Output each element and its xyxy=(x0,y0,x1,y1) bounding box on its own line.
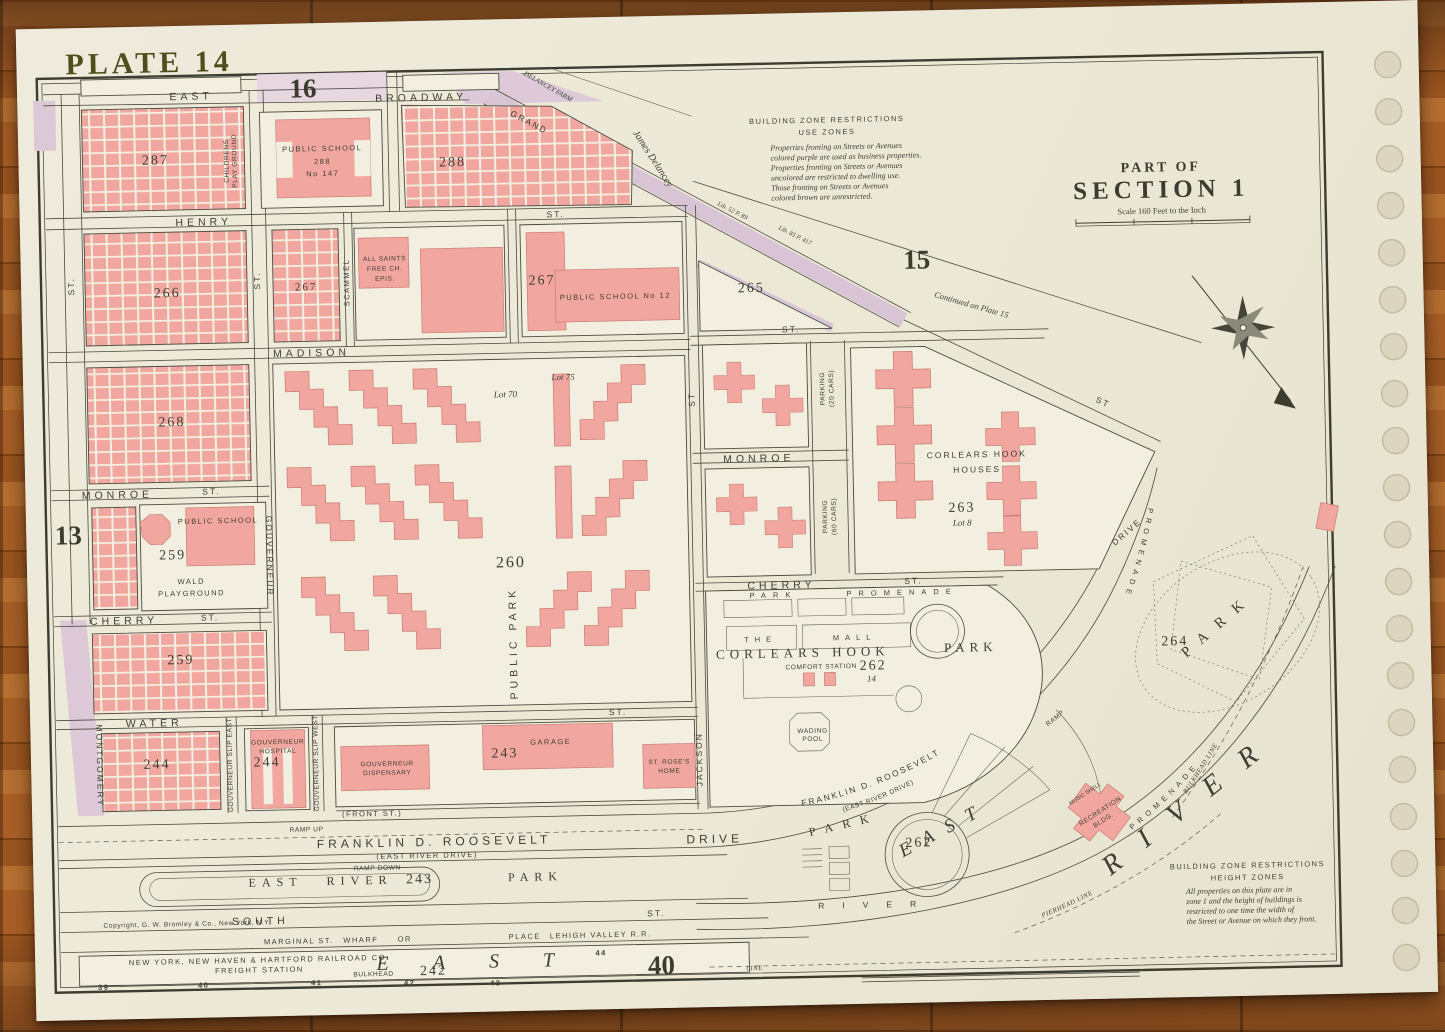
continued-note: Continued on Plate 15 xyxy=(933,289,1010,320)
corlears-hook-houses-line2: HOUSES xyxy=(953,464,1001,475)
ps259-label: PUBLIC SCHOOL xyxy=(178,515,259,526)
use-zones-subheading: USE ZONES xyxy=(798,127,855,137)
erp-river: RIVER xyxy=(326,873,392,888)
street-fdr-west-drive: DRIVE xyxy=(686,831,743,846)
title-scale: Scale 160 Feet to the Inch xyxy=(1117,204,1206,216)
block-262-lot: 14 xyxy=(867,674,877,684)
block-259-wald: 259 xyxy=(159,548,186,564)
block-287: 287 xyxy=(142,153,169,169)
height-zones-heading: BUILDING ZONE RESTRICTIONS xyxy=(1170,859,1325,871)
parking60-line2: (60 CARS) xyxy=(831,498,839,535)
parking20-line1: PARKING xyxy=(819,372,827,406)
block-262-park: 262 xyxy=(860,658,887,674)
plate-title: PLATE 14 xyxy=(65,45,233,81)
river-letters-big: RIVER xyxy=(1095,723,1286,883)
hospital-line2: HOSPITAL xyxy=(259,748,296,756)
block-259: 259 xyxy=(167,653,194,669)
parking60-line1: PARKING xyxy=(822,500,830,534)
street-water: WATER xyxy=(126,717,183,730)
street-front: (FRONT ST.) xyxy=(342,808,402,818)
neighbor-plate-15: 15 xyxy=(903,244,931,275)
deed-ref-b: Lib. 85 P. 417 xyxy=(776,224,813,247)
block-243-park: 243 xyxy=(406,872,433,888)
st-roses-line1: ST. ROSE'S xyxy=(648,758,690,766)
river-letters-small: RIVER xyxy=(818,898,934,910)
street-fdr-west-sub: (EAST RIVER DRIVE) xyxy=(376,850,478,861)
block-266: 266 xyxy=(154,286,181,302)
block-243: 243 xyxy=(491,746,518,762)
pier-40: 40 xyxy=(198,981,210,990)
street-left-st: ST. xyxy=(66,277,76,295)
the-mall-the: THE xyxy=(744,635,777,645)
atlas-sheet: PLATE 14 xyxy=(16,0,1438,1021)
dispensary-line2: DISPENSARY xyxy=(363,769,412,777)
dispensary-line1: GOUVERNEUR xyxy=(360,760,413,768)
street-monroe-e: MONROE xyxy=(723,452,794,465)
block-260: 260 xyxy=(496,554,526,572)
street-marginal: MARGINAL ST. xyxy=(264,936,334,946)
compass-rose xyxy=(1192,274,1296,411)
street-cherry-e-st: ST. xyxy=(904,576,922,586)
street-madison-st: ST. xyxy=(782,324,800,334)
pier-43: 43 xyxy=(490,978,502,987)
street-gouverneur-slip-east: GOUVERNEUR SLIP EAST xyxy=(226,718,235,812)
lot-75: Lot 75 xyxy=(550,372,575,383)
street-monroe-w-st: ST. xyxy=(202,486,220,496)
street-henry-st: ST. xyxy=(546,209,564,219)
title-block: PART OF SECTION 1 Scale 160 Feet to the … xyxy=(1073,159,1251,227)
neighbor-plate-13: 13 xyxy=(54,520,82,551)
pierhead-line-label: PIERHEAD LINE xyxy=(1039,890,1094,920)
block-267-mid: 267 xyxy=(295,281,318,293)
legend-height-zones: BUILDING ZONE RESTRICTIONS HEIGHT ZONES … xyxy=(1170,859,1327,926)
block-244-west: 244 xyxy=(253,755,280,771)
street-broadway: BROADWAY xyxy=(375,91,467,105)
block-244-hosp: 244 xyxy=(143,757,170,773)
erp-east: EAST xyxy=(248,875,302,890)
ps288-line3: No 147 xyxy=(306,169,339,179)
street-place: PLACE xyxy=(509,932,541,942)
east-letters-bottom: EAST xyxy=(375,948,598,975)
street-madison-st-diag: ST xyxy=(1094,394,1112,409)
street-gouverneur: GOUVERNEUR xyxy=(264,516,276,597)
pierhead-line-text: PIERHEAD LINE xyxy=(1039,890,1094,920)
corlears-hook-park-park: PARK xyxy=(944,639,998,655)
street-south-st: ST. xyxy=(647,908,665,918)
pier-44: 44 xyxy=(595,948,607,957)
street-mid-st: ST. xyxy=(252,271,262,289)
park-letters-fan: PARK xyxy=(808,809,880,839)
street-gouverneur-slip-west: GOUVERNEUR SLIP WEST xyxy=(312,715,321,811)
height-zones-subheading: HEIGHT ZONES xyxy=(1211,872,1285,883)
title-section: SECTION 1 xyxy=(1073,175,1250,206)
bulkhead-label: BULKHEAD xyxy=(353,971,393,979)
pier-42: 42 xyxy=(404,978,416,987)
street-or: OR xyxy=(398,934,412,943)
street-cherry-w-st: ST. xyxy=(201,612,219,622)
ps288-line2: 288 xyxy=(314,157,331,166)
map-plate: PLATE 14 xyxy=(16,0,1438,1021)
title-part-of: PART OF xyxy=(1121,160,1202,177)
street-monroe-w: MONROE xyxy=(82,489,153,502)
street-montgomery: MONTGOMERY xyxy=(94,724,106,807)
block-268: 268 xyxy=(158,415,185,431)
scale-bar xyxy=(1076,216,1250,227)
pier-41: 41 xyxy=(311,978,323,987)
street-water-st: ST. xyxy=(609,707,627,717)
street-wharf: WHARF xyxy=(343,935,378,945)
street-ramp-up: RAMP UP xyxy=(289,826,323,834)
pierhead-line-word: LINE xyxy=(745,965,763,972)
comfort-station-label: COMFORT STATION xyxy=(785,663,857,671)
street-jackson: JACKSON xyxy=(694,732,705,786)
neighbor-plate-40: 40 xyxy=(648,950,676,981)
copyright: Copyright, G. W. Bromley & Co., New York… xyxy=(103,919,271,930)
ps288-line1: PUBLIC SCHOOL xyxy=(282,143,363,154)
the-mall-mall: MALL xyxy=(833,633,877,643)
erp-park: PARK xyxy=(508,869,563,884)
neighbor-plate-16: 16 xyxy=(289,73,317,104)
legend-use-zones: BUILDING ZONE RESTRICTIONS USE ZONES Pro… xyxy=(749,113,922,203)
wald-line2: PLAYGROUND xyxy=(158,588,225,598)
parking20-line2: (20 CARS) xyxy=(828,370,836,407)
block-267: 267 xyxy=(528,273,555,289)
block-263-lot8: Lot 8 xyxy=(952,517,972,527)
childrens-label: CHILDRENS xyxy=(223,139,231,183)
wading-pool-line1: WADING xyxy=(797,728,828,736)
block-265: 265 xyxy=(738,281,765,297)
street-scammel: SCAMMEL xyxy=(342,259,352,307)
all-saints-line1: ALL SAINTS xyxy=(363,255,406,263)
block-288: 288 xyxy=(439,155,466,171)
st-roses-line2: HOME xyxy=(658,768,680,775)
height-zones-line4: the Street or Avenue on which they front… xyxy=(1187,914,1317,926)
block-263: 263 xyxy=(948,500,975,516)
garage-label: GARAGE xyxy=(530,737,571,747)
wald-line1: WALD xyxy=(177,577,205,587)
street-ramp-down: RAMP DOWN xyxy=(354,865,401,873)
street-east: EAST xyxy=(169,90,213,103)
lot-70: Lot 70 xyxy=(493,389,518,400)
park-letters-264: PARK xyxy=(1178,589,1257,661)
east-letters-inner: EAST xyxy=(895,797,993,863)
use-zones-line6: colored brown are unrestricted. xyxy=(771,191,872,202)
street-cherry-w: CHERRY xyxy=(90,615,158,628)
freight-line2: FREIGHT STATION xyxy=(215,965,304,976)
street-fdr-west: FRANKLIN D. ROOSEVELT xyxy=(317,832,552,851)
pier-39: 39 xyxy=(98,983,110,992)
public-park-label: PUBLIC PARK xyxy=(506,587,520,700)
street-henry: HENRY xyxy=(175,216,232,229)
street-lehigh-valley: LEHIGH VALLEY R.R. xyxy=(550,929,652,940)
hospital-line1: GOUVERNEUR xyxy=(251,739,304,747)
binder-holes xyxy=(1374,51,1419,970)
all-saints-line2: FREE CH. xyxy=(367,265,403,273)
street-madison: MADISON xyxy=(273,346,350,360)
wading-pool-line2: POOL xyxy=(802,736,823,743)
playground-label: PLAY GROUND xyxy=(231,134,239,188)
use-zones-heading: BUILDING ZONE RESTRICTIONS xyxy=(749,114,904,126)
corlears-hook-houses-line1: CORLEARS HOOK xyxy=(927,448,1027,460)
street-ramp: RAMP xyxy=(1045,709,1066,728)
street-jackson-st: ST xyxy=(686,392,696,407)
all-saints-line3: EPIS. xyxy=(375,276,395,283)
